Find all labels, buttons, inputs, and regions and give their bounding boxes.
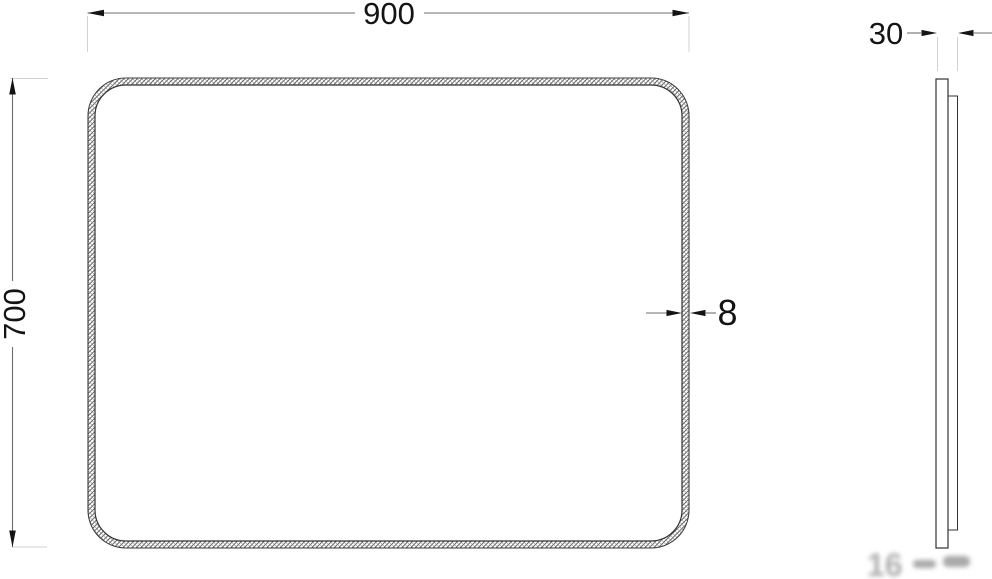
watermark-dash-icon bbox=[943, 556, 970, 567]
arrowhead-up-icon bbox=[9, 78, 16, 95]
arrowhead-right-icon bbox=[673, 10, 690, 17]
arrowhead-right-icon bbox=[922, 30, 938, 36]
side-view-glass-panel bbox=[936, 79, 948, 548]
frame-thickness-label: 8 bbox=[717, 292, 737, 333]
mirror-front-view bbox=[88, 78, 689, 548]
watermark-text: 16 bbox=[867, 547, 903, 579]
watermark: 16 bbox=[867, 547, 970, 579]
dimension-depth: 30 bbox=[869, 16, 992, 71]
depth-dimension-label: 30 bbox=[869, 16, 903, 51]
arrowhead-down-icon bbox=[9, 531, 16, 548]
watermark-dash-icon bbox=[913, 560, 936, 568]
height-dimension-label: 700 bbox=[0, 288, 32, 340]
side-view-back-panel bbox=[948, 96, 958, 530]
technical-drawing: 900 700 8 30 16 bbox=[0, 0, 992, 579]
arrowhead-left-icon bbox=[958, 30, 974, 36]
dimension-width: 900 bbox=[88, 0, 690, 52]
arrowhead-left-icon bbox=[88, 10, 105, 17]
mirror-side-view bbox=[936, 79, 958, 548]
width-dimension-label: 900 bbox=[363, 0, 415, 31]
mirror-glass-area bbox=[95, 85, 682, 541]
arrowhead-left-icon bbox=[690, 310, 706, 316]
dimension-height: 700 bbox=[0, 78, 48, 547]
